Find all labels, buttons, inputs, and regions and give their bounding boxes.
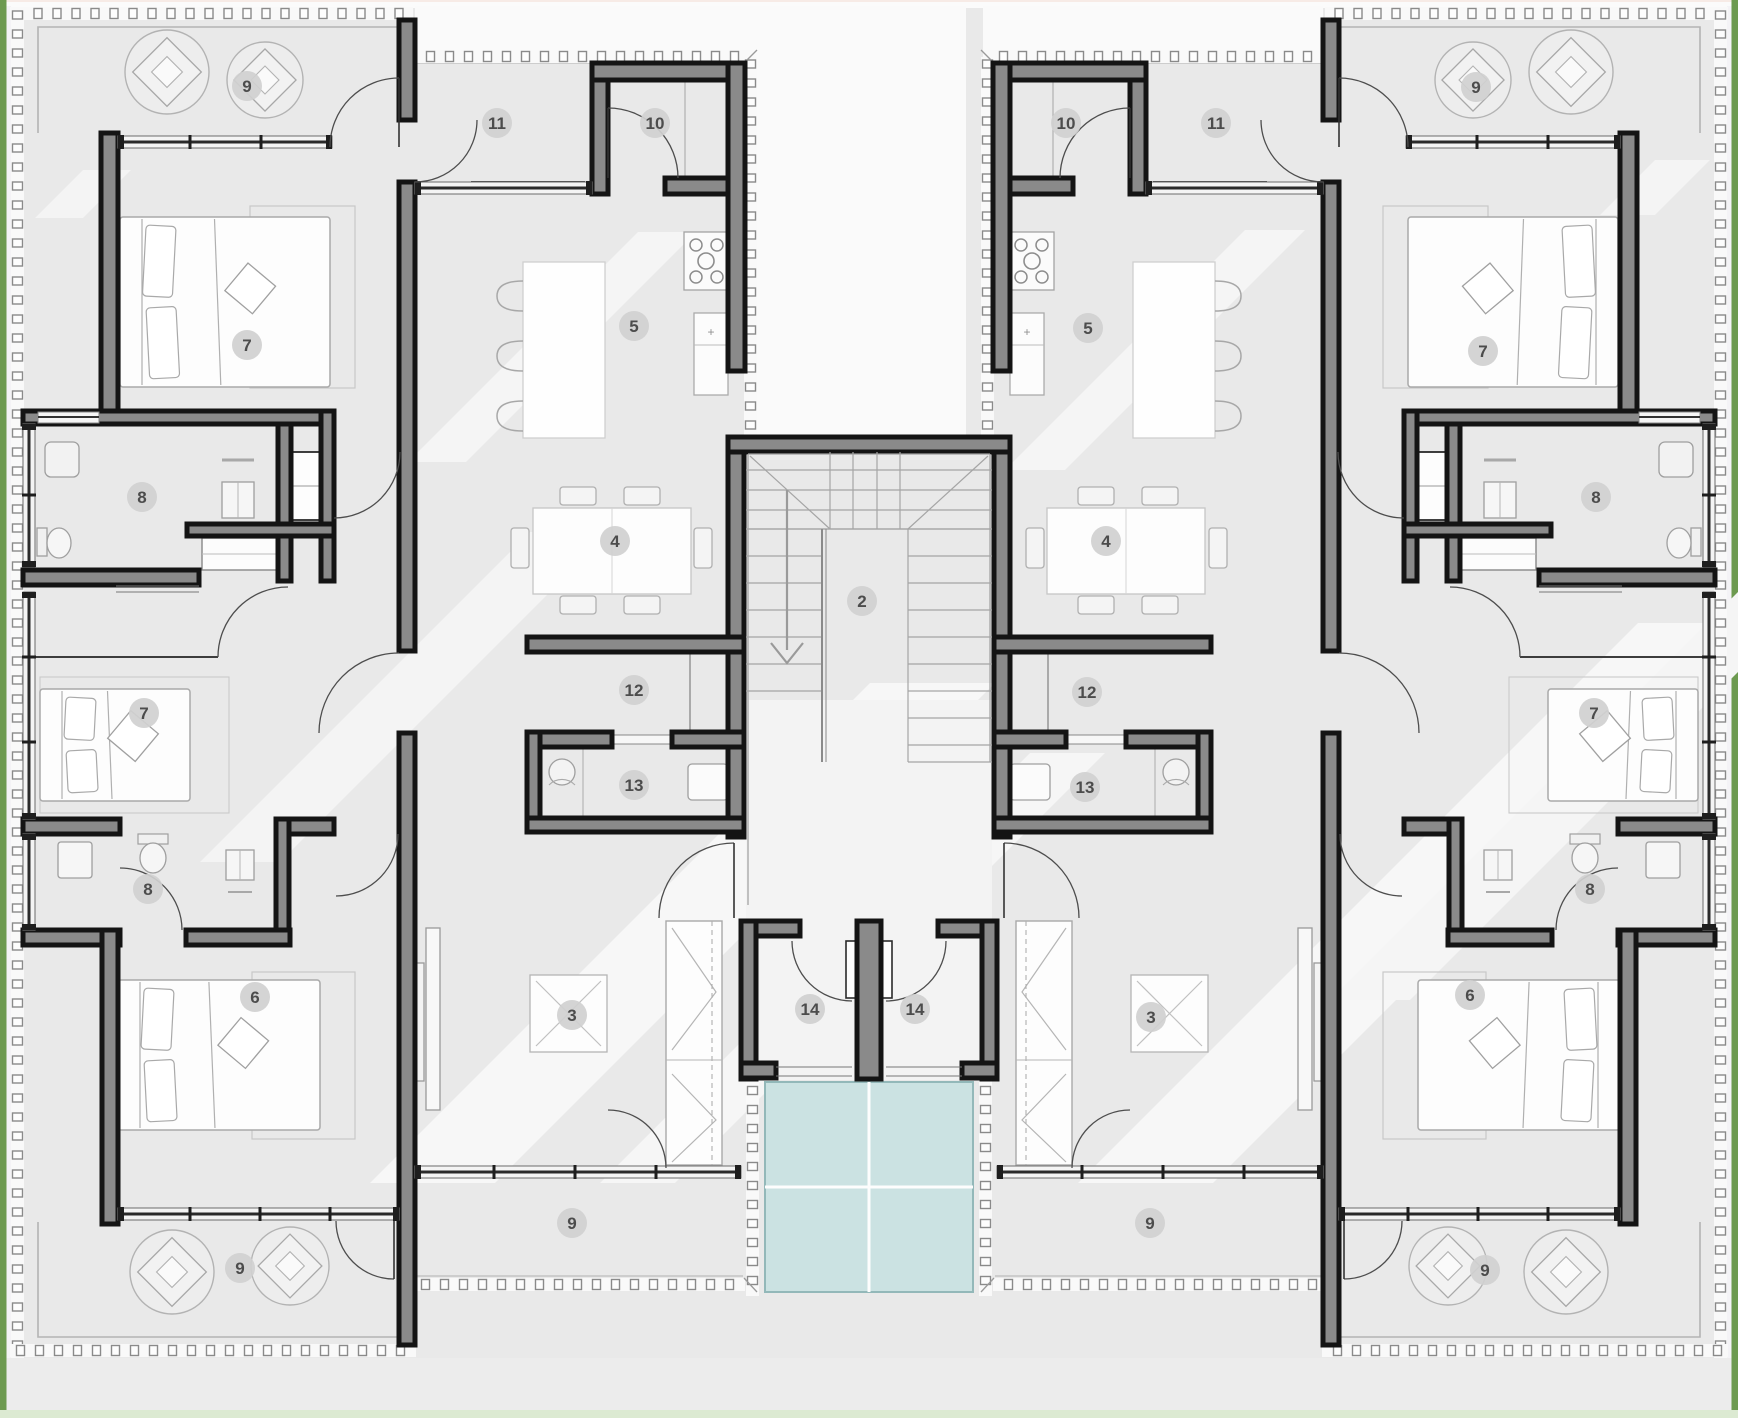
svg-text:11: 11 — [1207, 114, 1225, 133]
svg-text:3: 3 — [567, 1006, 576, 1025]
svg-text:9: 9 — [1145, 1214, 1154, 1233]
svg-text:13: 13 — [1076, 778, 1095, 797]
svg-text:8: 8 — [1585, 880, 1594, 899]
svg-text:5: 5 — [629, 317, 638, 336]
svg-text:13: 13 — [625, 776, 644, 795]
svg-text:4: 4 — [1101, 532, 1111, 551]
svg-text:9: 9 — [567, 1214, 576, 1233]
svg-text:14: 14 — [801, 1000, 820, 1019]
svg-text:10: 10 — [646, 114, 665, 133]
svg-text:5: 5 — [1083, 319, 1092, 338]
svg-text:+: + — [1023, 325, 1030, 339]
svg-text:9: 9 — [1471, 78, 1480, 97]
svg-text:12: 12 — [1078, 683, 1097, 702]
svg-text:7: 7 — [1478, 342, 1487, 361]
svg-text:3: 3 — [1146, 1008, 1155, 1027]
svg-text:7: 7 — [1589, 704, 1598, 723]
svg-text:2: 2 — [857, 592, 866, 611]
svg-text:9: 9 — [242, 77, 251, 96]
svg-text:11: 11 — [488, 114, 506, 133]
svg-text:8: 8 — [143, 880, 152, 899]
svg-text:7: 7 — [242, 336, 251, 355]
svg-text:12: 12 — [625, 681, 644, 700]
svg-text:+: + — [707, 325, 714, 339]
svg-text:9: 9 — [1480, 1261, 1489, 1280]
svg-text:6: 6 — [250, 988, 259, 1007]
svg-text:14: 14 — [906, 1000, 925, 1019]
svg-text:9: 9 — [235, 1259, 244, 1278]
svg-text:7: 7 — [139, 704, 148, 723]
svg-text:8: 8 — [1591, 488, 1600, 507]
svg-text:8: 8 — [137, 488, 146, 507]
svg-text:6: 6 — [1465, 986, 1474, 1005]
svg-text:4: 4 — [610, 532, 620, 551]
svg-text:10: 10 — [1057, 114, 1076, 133]
